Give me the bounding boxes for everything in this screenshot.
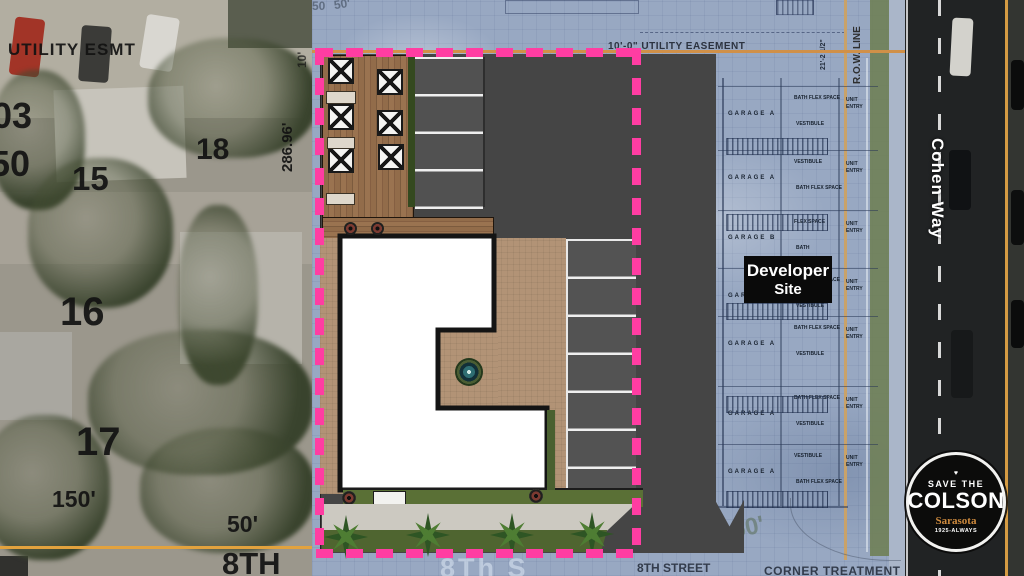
- heart-icon: ♥: [954, 470, 958, 477]
- house-roof: [0, 556, 28, 576]
- unit-room-label: BATH: [796, 245, 810, 251]
- bench: [326, 193, 355, 205]
- stair-hatch: [726, 214, 828, 231]
- developer-site-line2: Site: [774, 281, 802, 298]
- unit-entry-label: UNIT ENTRY: [846, 97, 872, 110]
- badge-tagline: 1925-ALWAYS: [935, 528, 977, 534]
- bench: [326, 91, 356, 104]
- parked-car-dark: [949, 150, 971, 210]
- parked-car-white: [949, 17, 973, 76]
- planter: [529, 489, 543, 503]
- label-lot-50: 50: [0, 146, 30, 182]
- hedge-strip: [408, 57, 415, 207]
- umbrella-table: [378, 144, 404, 170]
- save-the-colson-badge: ♥ SAVE THE COLSON Sarasota 1925-ALWAYS: [906, 452, 1006, 552]
- building-footprint: [318, 226, 558, 506]
- label-utility-esmt: UTILITY ESMT: [8, 41, 136, 58]
- unit-room-label: BATH FLEX SPACE: [796, 479, 842, 485]
- label-8th-street: 8TH STREET: [637, 562, 710, 575]
- garage-unit-row: GARAGE A BATH FLEX SPACE VESTIBULE UNIT …: [718, 316, 878, 377]
- unit-entry-label: UNIT ENTRY: [846, 397, 872, 410]
- unit-room-label: BATH FLEX SPACE: [794, 325, 840, 331]
- label-dim-150: 150': [52, 488, 96, 511]
- label-lot-15: 15: [72, 162, 109, 195]
- parked-car-dark: [1011, 300, 1024, 348]
- umbrella-table: [328, 58, 354, 84]
- label-dim-10: 10': [296, 42, 308, 68]
- unit-room-label: VESTIBULE: [796, 351, 824, 357]
- badge-city: Sarasota: [936, 515, 977, 527]
- unit-room-label: BATH FLEX SPACE: [796, 185, 842, 191]
- label-lot-16: 16: [60, 292, 105, 332]
- bench: [327, 137, 355, 149]
- label-faded-50b: 50': [333, 0, 351, 12]
- label-lot-17: 17: [76, 422, 121, 462]
- site-boundary-left: [315, 48, 324, 558]
- unit-entry-label: UNIT ENTRY: [846, 327, 872, 340]
- fountain: [455, 358, 483, 386]
- driveway-flare: [715, 500, 747, 554]
- unit-entry-label: UNIT ENTRY: [846, 279, 872, 292]
- label-dim-286: 286.96': [280, 86, 295, 172]
- site-boundary-right: [632, 48, 641, 558]
- site-boundary-top: [316, 48, 644, 57]
- label-dim-21: 21'-2 1/2": [820, 26, 828, 70]
- badge-name: COLSON: [907, 489, 1004, 512]
- garage-label: GARAGE A: [728, 111, 776, 117]
- road-sidewalk-strip: [889, 0, 905, 576]
- house-roof: [0, 332, 72, 420]
- label-dim-50: 50': [227, 513, 258, 536]
- unit-room-label: VESTIBULE: [796, 121, 824, 127]
- aerial-photo: UTILITY ESMT 03 50 15 18 16 17 150' 50' …: [0, 0, 312, 576]
- entry-pad: [373, 491, 406, 506]
- stair-hatch: [726, 396, 828, 413]
- garage-label: GARAGE A: [728, 175, 776, 181]
- label-corner-treatment: CORNER TREATMENT: [764, 565, 900, 576]
- umbrella-table: [377, 69, 403, 95]
- lawn-edge-green: [547, 410, 555, 490]
- unit-room-label: VESTIBULE: [796, 421, 824, 427]
- parking-stalls-top: [415, 57, 483, 209]
- site-plan-overlay-image: UTILITY ESMT 03 50 15 18 16 17 150' 50' …: [0, 0, 1024, 576]
- planter: [344, 222, 357, 235]
- unit-entry-label: UNIT ENTRY: [846, 455, 872, 468]
- parking-edge-line: [483, 57, 485, 207]
- faint-building-outline: [776, 0, 814, 15]
- garage-unit-row: GARAGE A VESTIBULE BATH FLEX SPACE UNIT …: [718, 150, 878, 211]
- label-faded-50: 50: [312, 0, 325, 13]
- unit-entry-label: UNIT ENTRY: [846, 161, 872, 174]
- garage-label: GARAGE A: [728, 469, 776, 475]
- parked-car-dark: [951, 330, 973, 398]
- stair-hatch: [726, 138, 828, 155]
- label-row-line: R.O.W. LINE: [852, 8, 863, 84]
- faint-building-outline: [505, 0, 639, 14]
- umbrella-table: [377, 110, 403, 136]
- developer-site-label: Developer Site: [744, 256, 832, 303]
- site-boundary-bottom: [316, 549, 642, 558]
- garage-label: GARAGE A: [728, 341, 776, 347]
- unit-room-label: BATH FLEX SPACE: [794, 95, 840, 101]
- planter: [371, 222, 384, 235]
- unit-room-label: VESTIBULE: [794, 159, 822, 165]
- umbrella-table: [328, 147, 354, 173]
- planter: [342, 491, 356, 505]
- parked-car-dark: [1011, 60, 1024, 110]
- label-8th-big: 8TH: [222, 548, 281, 576]
- garage-label: GARAGE B: [728, 235, 776, 241]
- umbrella-table: [328, 104, 354, 130]
- label-lot-03: 03: [0, 98, 32, 134]
- label-cohen-way: Cohen Way: [927, 138, 947, 239]
- unit-entry-label: UNIT ENTRY: [846, 221, 872, 234]
- parking-stalls-right: [566, 239, 636, 501]
- stair-hatch: [726, 303, 828, 320]
- unit-room-label: VESTIBULE: [794, 453, 822, 459]
- developer-site-line1: Developer: [747, 261, 829, 281]
- faint-dashed-line: [640, 32, 845, 33]
- label-lot-18: 18: [196, 135, 229, 165]
- parked-car-dark: [1011, 190, 1024, 245]
